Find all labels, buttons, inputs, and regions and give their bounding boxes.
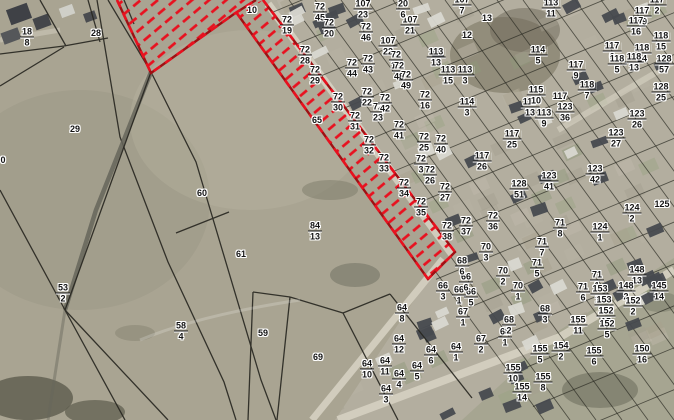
cadastral-map[interactable]: 1882829060615325845984136569107219724572… <box>0 0 674 420</box>
aerial-imagery-layer <box>0 0 674 420</box>
